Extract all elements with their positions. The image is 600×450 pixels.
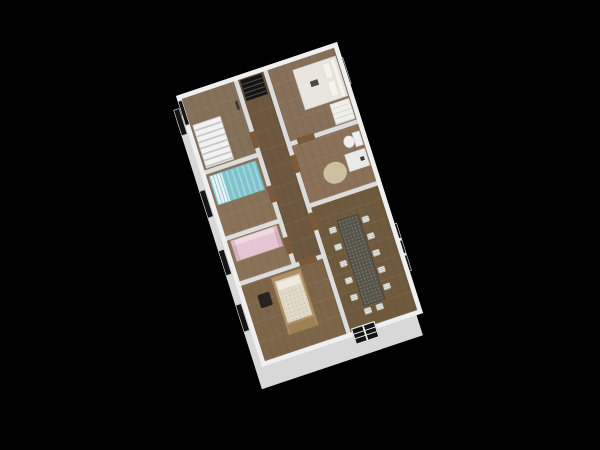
bed-pillow — [209, 172, 230, 204]
render-canvas — [0, 0, 600, 450]
floor-plan[interactable] — [176, 42, 423, 367]
laptop-on-bed[interactable] — [310, 79, 319, 87]
faucet — [360, 156, 365, 161]
